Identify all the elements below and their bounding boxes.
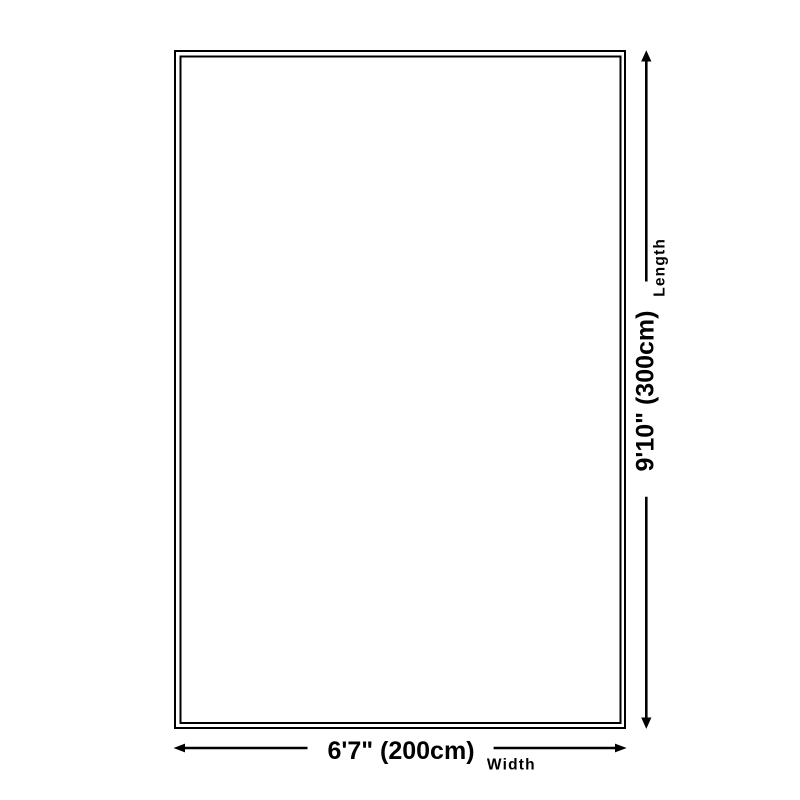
svg-text:9'10" (300cm): 9'10" (300cm)	[632, 311, 660, 472]
svg-text:Width: Width	[487, 756, 536, 773]
svg-text:Length: Length	[651, 238, 668, 297]
svg-text:6'7" (200cm): 6'7" (200cm)	[327, 737, 474, 765]
